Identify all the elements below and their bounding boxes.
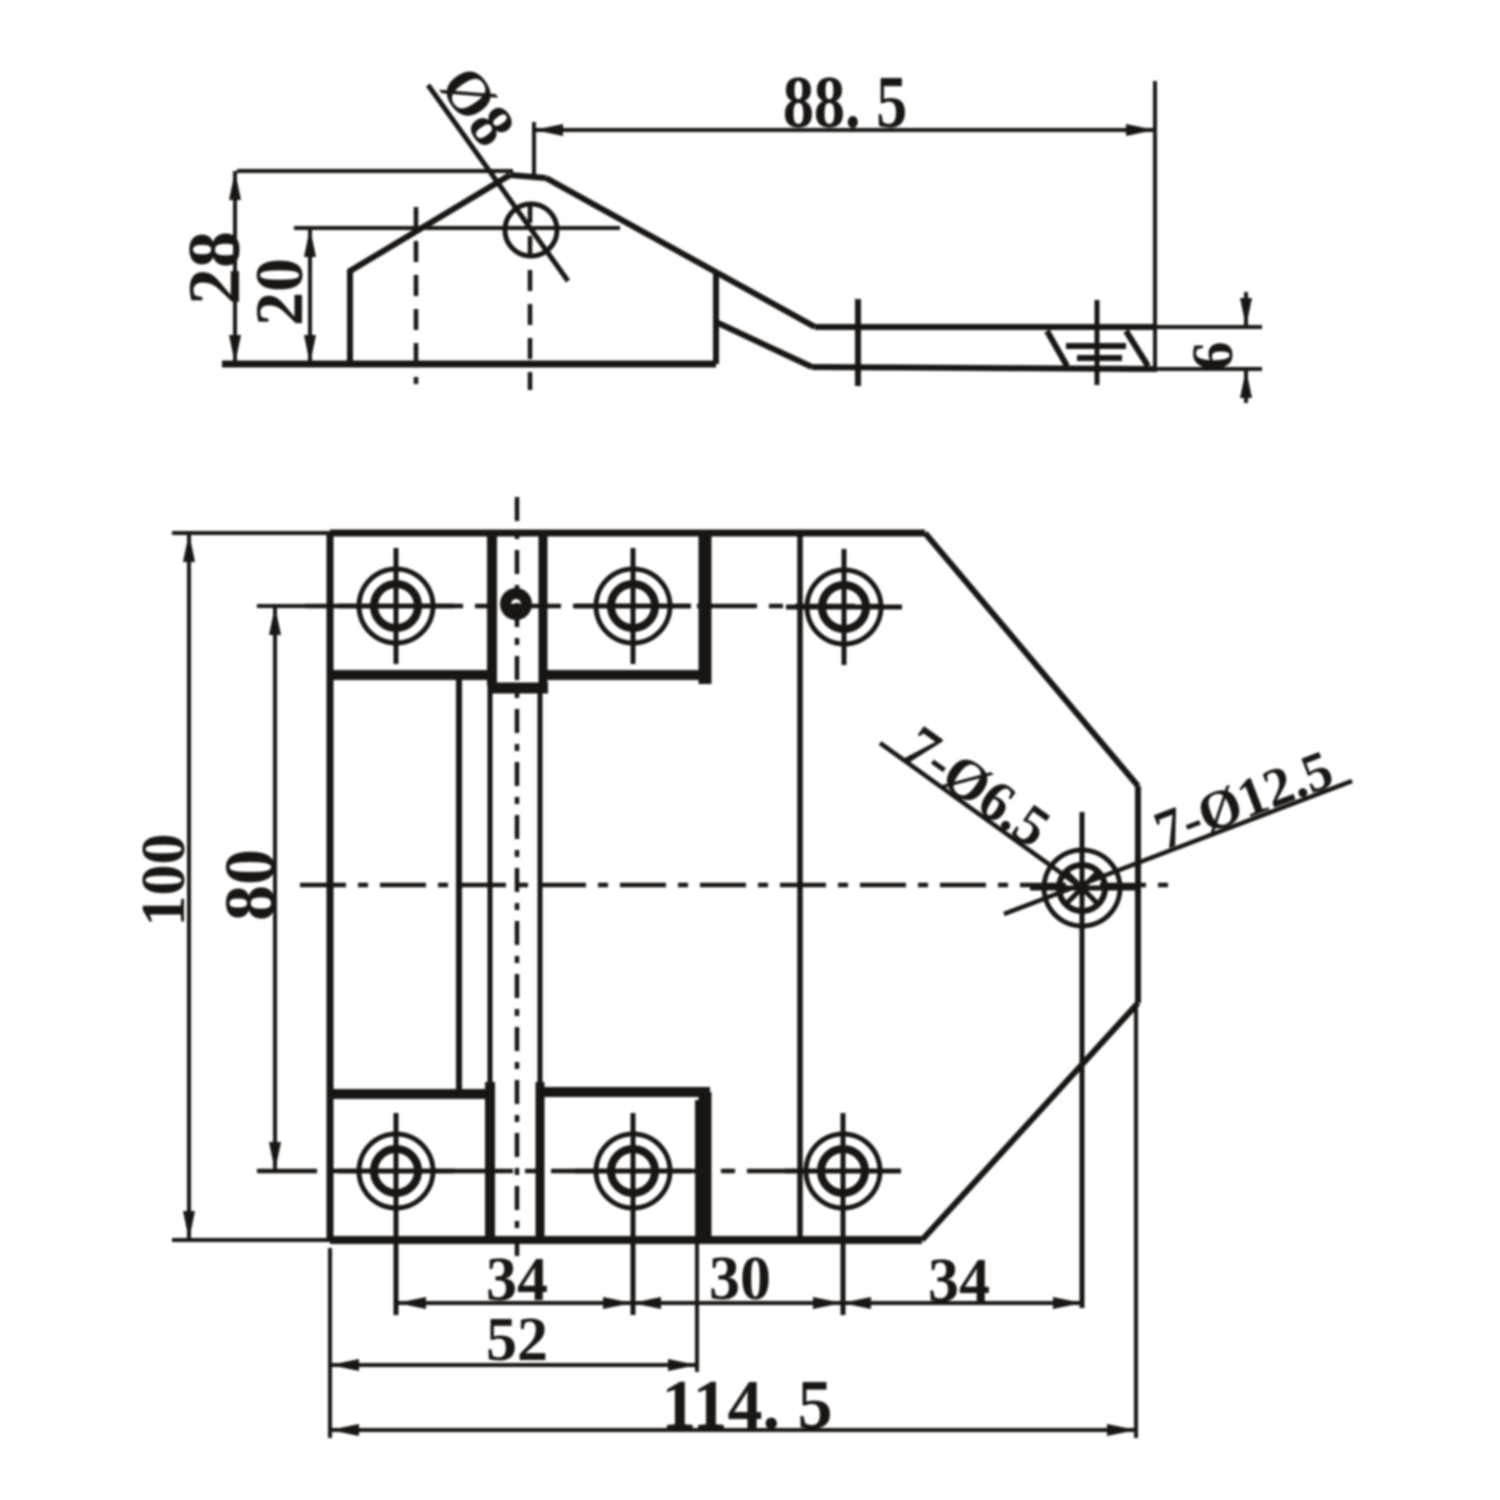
svg-text:7-Ø12.5: 7-Ø12.5 [1146, 738, 1340, 861]
svg-text:88. 5: 88. 5 [783, 61, 907, 143]
svg-text:34: 34 [928, 1247, 990, 1315]
svg-text:20: 20 [241, 258, 317, 326]
svg-text:7-Ø6.5: 7-Ø6.5 [892, 714, 1061, 860]
svg-text:100: 100 [130, 834, 198, 927]
svg-text:6: 6 [1180, 342, 1245, 371]
svg-text:34: 34 [486, 1246, 548, 1314]
svg-text:Ø8: Ø8 [427, 55, 528, 159]
svg-text:52: 52 [486, 1306, 548, 1374]
svg-text:80: 80 [210, 849, 290, 921]
svg-text:30: 30 [709, 1245, 771, 1313]
svg-text:114. 5: 114. 5 [661, 1367, 832, 1444]
